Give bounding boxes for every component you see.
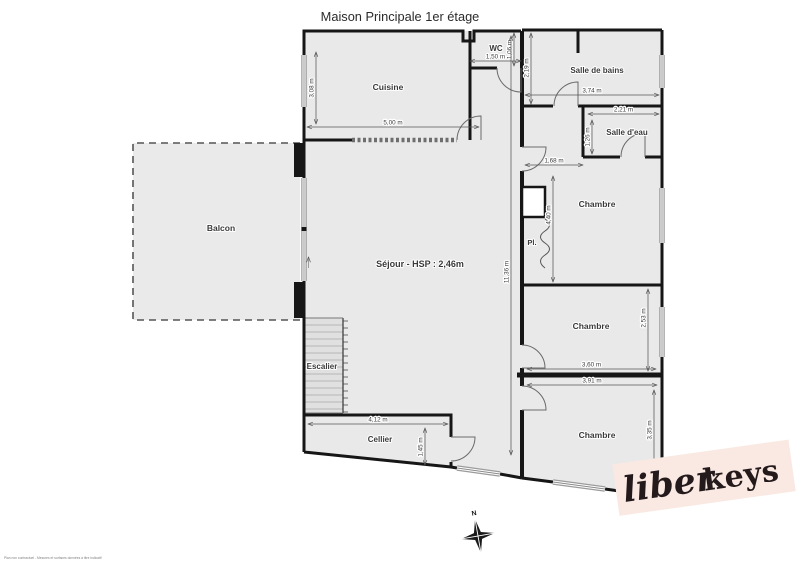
page-title: Maison Principale 1er étage xyxy=(321,9,480,24)
dim-chambre-bas-depth: 3,35 m xyxy=(647,420,654,439)
compass-north-label: N xyxy=(471,510,477,518)
dim-chambre-haut-depth: 4,40 m xyxy=(546,205,553,224)
dim-chambre-milieu-width: 3,60 m xyxy=(582,362,601,369)
room-label-chambre-milieu: Chambre xyxy=(573,321,610,331)
dim-chambre-milieu-depth: 2,53 m xyxy=(641,308,648,327)
dim-sdb-width: 3,74 m xyxy=(582,88,601,95)
dim-wc-depth: 1,06 m xyxy=(507,40,514,59)
dim-cellier-depth: 1,45 m xyxy=(418,437,425,456)
room-label-chambre-haut: Chambre xyxy=(579,199,616,209)
dim-hall-width: 1,68 m xyxy=(544,158,563,165)
room-label-salle-d-eau: Salle d'eau xyxy=(606,128,648,137)
room-label-balcon: Balcon xyxy=(207,223,235,233)
dim-sdb-depth: 2,19 m xyxy=(524,58,531,77)
right-wing-floor-area xyxy=(522,30,662,497)
room-label-cuisine: Cuisine xyxy=(373,82,404,92)
room-label-sejour: Séjour - HSP : 2,46m xyxy=(376,259,464,269)
room-label-placard: Pl. xyxy=(527,238,536,247)
footer-disclaimer: Plan non contractuel - Mesures et surfac… xyxy=(4,556,102,560)
room-label-cellier: Cellier xyxy=(368,435,392,444)
room-label-salle-de-bains: Salle de bains xyxy=(570,66,624,75)
dim-cuisine-depth: 3,08 m xyxy=(309,78,316,97)
floor-plan-canvas: Maison Principale 1er étage xyxy=(0,0,800,566)
room-label-escalier: Escalier xyxy=(307,362,338,371)
dim-cuisine-width: 5,00 m xyxy=(383,120,402,127)
compass-rose: N xyxy=(457,507,498,555)
dim-sde-width: 2,21 m xyxy=(614,107,633,114)
dim-sde-depth: 1,26 m xyxy=(585,127,592,146)
floor-areas xyxy=(304,30,662,497)
duct-shaft xyxy=(522,187,545,217)
floor-plan-page: Maison Principale 1er étage xyxy=(0,0,800,566)
dim-sejour-depth: 11,36 m xyxy=(504,261,511,283)
dim-chambre-bas-width: 3,91 m xyxy=(582,378,601,385)
balcony-sliding-door xyxy=(302,178,307,281)
dim-cellier-width: 4,12 m xyxy=(368,417,387,424)
room-label-chambre-bas: Chambre xyxy=(579,430,616,440)
dim-wc-width: 1,50 m xyxy=(486,54,505,61)
room-label-wc: WC xyxy=(489,44,503,53)
